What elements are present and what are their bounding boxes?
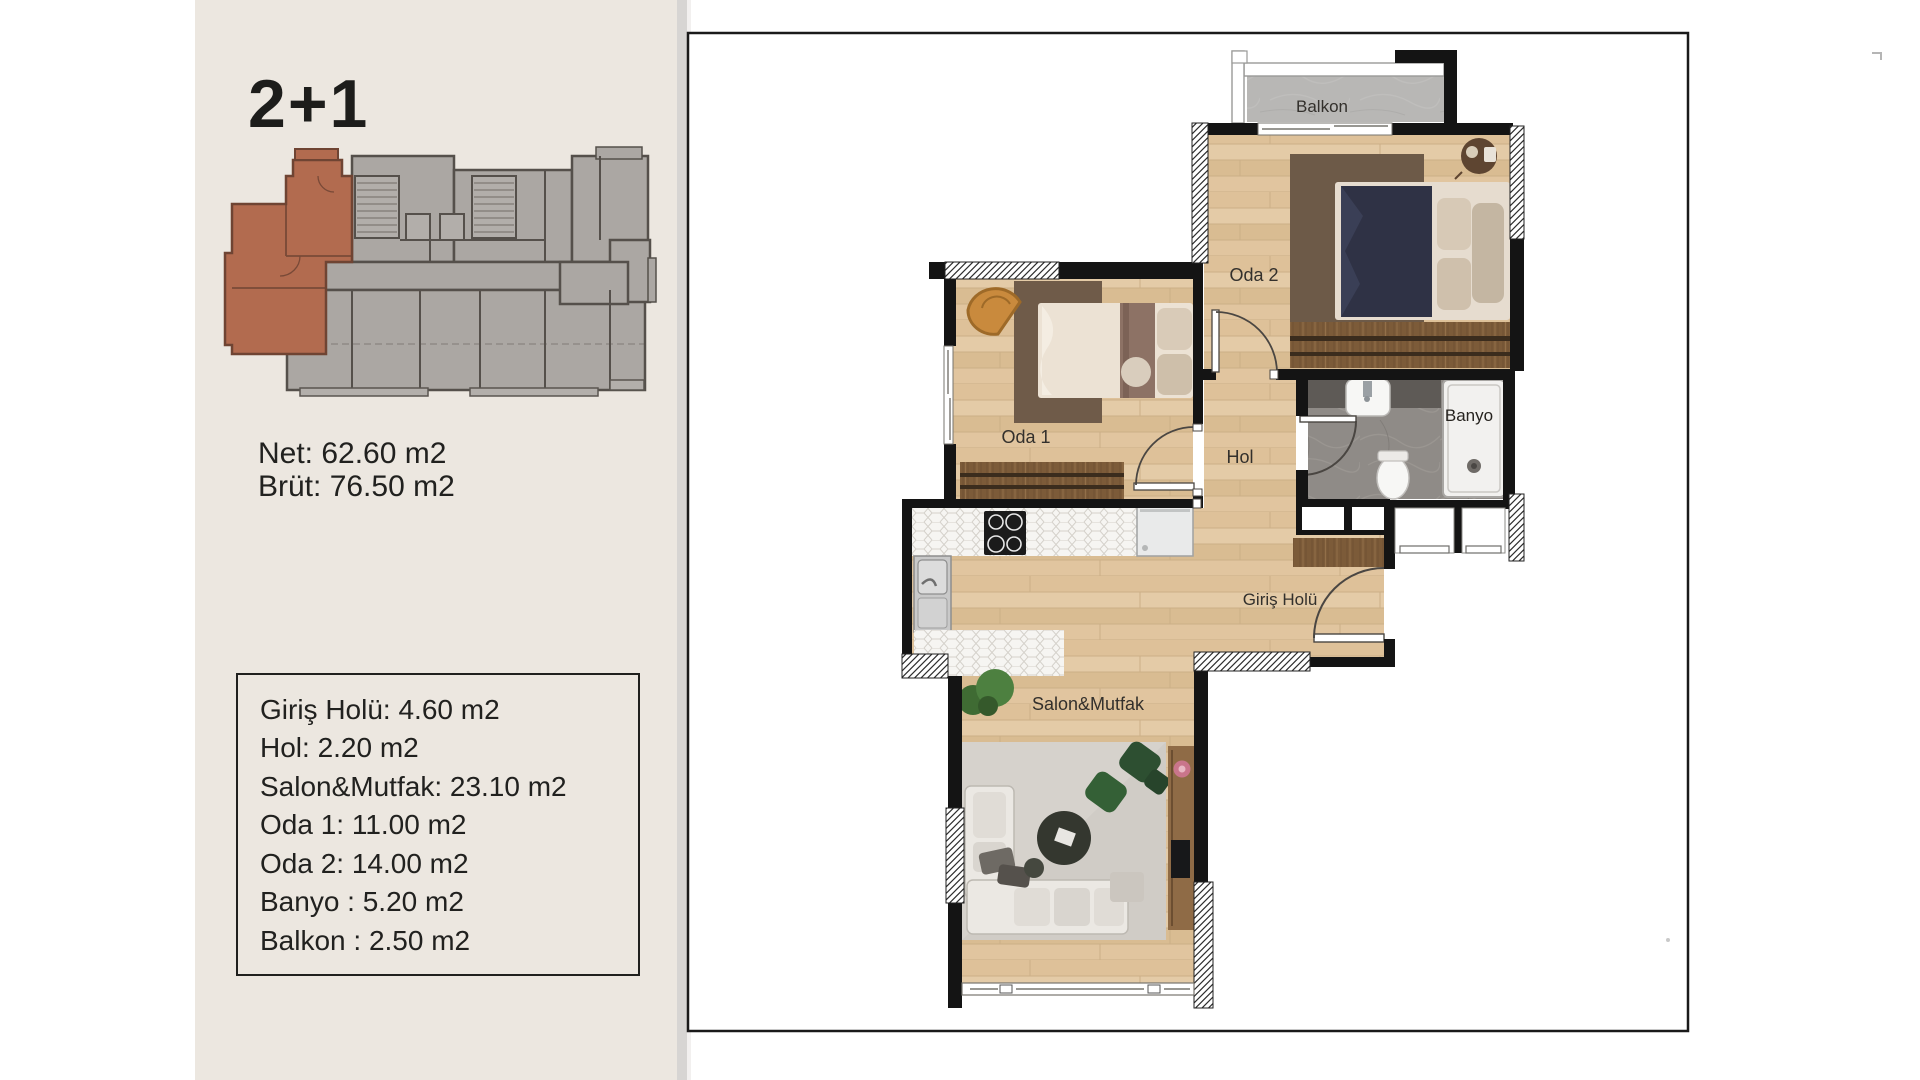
svg-text:Oda 2: Oda 2 (1229, 265, 1278, 285)
svg-text:Oda 1: 11.00 m2: Oda 1: 11.00 m2 (260, 809, 467, 840)
svg-text:Giriş Holü: Giriş Holü (1243, 590, 1318, 609)
svg-text:Oda 2: 14.00 m2: Oda 2: 14.00 m2 (260, 848, 469, 879)
svg-text:Salon&Mutfak: Salon&Mutfak (1032, 694, 1145, 714)
svg-text:2+1: 2+1 (248, 66, 369, 142)
svg-text:Balkon: Balkon (1296, 97, 1348, 116)
svg-text:Banyo: Banyo (1445, 406, 1493, 425)
svg-text:Giriş Holü: 4.60 m2: Giriş Holü: 4.60 m2 (260, 694, 500, 725)
svg-text:Salon&Mutfak: 23.10 m2: Salon&Mutfak: 23.10 m2 (260, 771, 567, 802)
svg-text:Brüt: 76.50 m2: Brüt: 76.50 m2 (258, 470, 455, 503)
svg-text:Hol: Hol (1226, 447, 1253, 467)
svg-text:Hol: 2.20 m2: Hol: 2.20 m2 (260, 732, 419, 763)
svg-text:Net: 62.60 m2: Net: 62.60 m2 (258, 437, 446, 470)
svg-text:Balkon : 2.50 m2: Balkon : 2.50 m2 (260, 925, 470, 956)
svg-text:Oda 1: Oda 1 (1001, 427, 1050, 447)
svg-text:Banyo : 5.20 m2: Banyo : 5.20 m2 (260, 886, 464, 917)
